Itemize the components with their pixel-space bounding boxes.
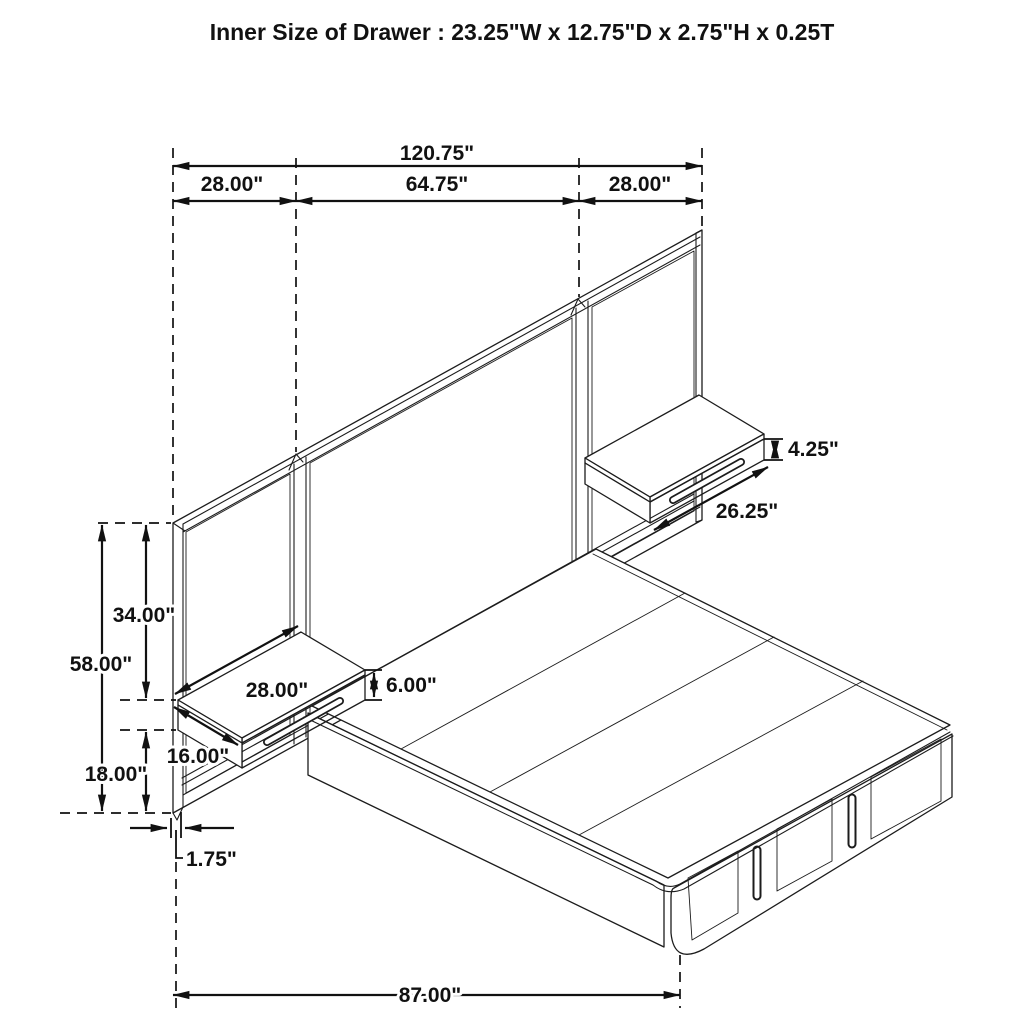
footboard-flute-1	[688, 851, 738, 940]
dim-label-panel-thickness: 1.75"	[186, 848, 237, 871]
diagram-title: Inner Size of Drawer : 23.25"W x 12.75"D…	[210, 19, 835, 45]
dim-label-panel-height: 58.00"	[70, 653, 133, 676]
dim-label-nightstand-left-depth: 16.00"	[167, 745, 230, 768]
diagram-page: Inner Size of Drawer : 23.25"W x 12.75"D…	[0, 0, 1024, 1024]
dim-label-section-right: 28.00"	[609, 173, 672, 196]
dim-label-top-to-nightstand: 34.00"	[113, 604, 176, 627]
dim-label-nightstand-right-width: 26.25"	[716, 500, 779, 523]
dim-label-section-middle: 64.75"	[406, 173, 469, 196]
dim-label-below-nightstand: 18.00"	[85, 763, 148, 786]
dim-label-nightstand-right-height: 4.25"	[788, 438, 839, 461]
bed-dimension-diagram: Inner Size of Drawer : 23.25"W x 12.75"D…	[0, 0, 1024, 1024]
dim-label-overall-width: 120.75"	[400, 142, 474, 165]
dim-label-nightstand-left-height: 6.00"	[386, 674, 437, 697]
dim-label-bed-length: 87.00"	[399, 984, 462, 1007]
dim-label-section-left: 28.00"	[201, 173, 264, 196]
dim-label-nightstand-left-width: 28.00"	[246, 679, 309, 702]
